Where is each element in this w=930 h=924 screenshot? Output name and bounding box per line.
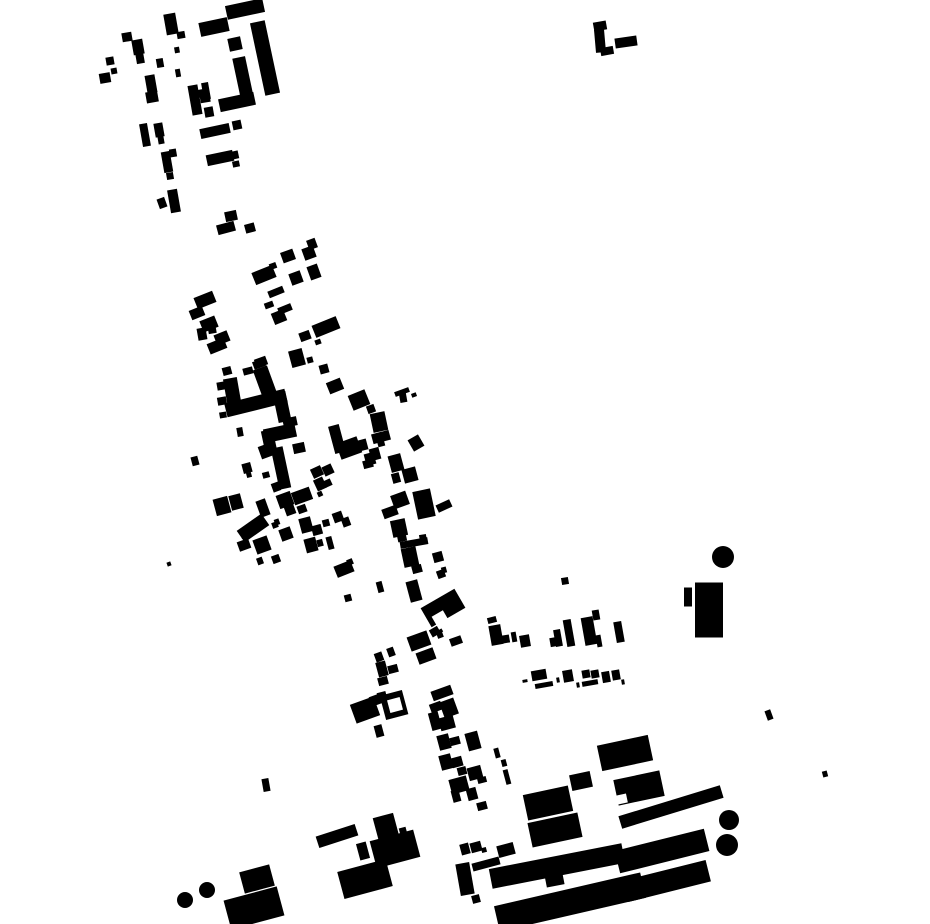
circular-building-footprint [712, 546, 734, 568]
building-footprint [569, 771, 593, 791]
building-footprint [408, 434, 425, 451]
building-footprint [377, 676, 389, 686]
building-footprint [415, 647, 436, 664]
circular-building-footprint [199, 882, 215, 898]
building-footprint [241, 462, 252, 474]
building-footprint [213, 496, 232, 516]
building-footprint [204, 106, 215, 117]
building-footprint [316, 824, 359, 848]
building-footprint [306, 264, 321, 281]
building-footprint [366, 404, 376, 414]
building-footprint [370, 411, 389, 433]
building-footprint [321, 463, 334, 476]
building-footprint [291, 487, 313, 506]
building-footprint [312, 316, 341, 338]
building-footprint [264, 301, 275, 310]
building-footprint [228, 493, 243, 511]
building-footprint [232, 160, 240, 167]
building-footprint [519, 634, 531, 648]
map-canvas [0, 0, 930, 924]
building-footprint [449, 635, 463, 647]
building-footprint [176, 31, 185, 39]
building-footprint [261, 778, 270, 792]
building-footprint [227, 36, 242, 51]
building-footprint [581, 616, 598, 646]
building-footprint [582, 679, 599, 687]
building-footprint [469, 841, 482, 854]
building-footprint [318, 363, 329, 374]
building-footprint [198, 17, 229, 37]
building-footprint [561, 577, 569, 585]
building-footprint [145, 91, 159, 104]
building-footprint [595, 635, 602, 648]
building-footprint [298, 516, 313, 534]
building-footprint [99, 72, 112, 84]
building-footprint [471, 894, 481, 904]
building-footprint [193, 291, 216, 310]
building-footprint [288, 270, 303, 285]
building-footprint [216, 221, 236, 235]
building-footprint [190, 456, 199, 467]
building-footprint [590, 669, 599, 678]
building-footprint [280, 249, 296, 264]
building-footprint [306, 356, 313, 363]
building-footprint [311, 524, 323, 536]
building-footprint [255, 498, 270, 517]
building-footprint [432, 551, 444, 563]
building-footprint [535, 681, 554, 689]
building-footprint [764, 709, 773, 720]
building-footprint [412, 488, 435, 519]
building-footprint [449, 736, 461, 746]
building-footprint [169, 148, 177, 157]
building-footprint [487, 616, 497, 624]
building-footprint [457, 766, 468, 776]
building-footprint [207, 324, 216, 334]
building-footprint [522, 679, 527, 683]
building-footprint [189, 306, 206, 321]
building-footprint [216, 381, 225, 390]
building-footprint [222, 366, 233, 376]
building-footprint [296, 504, 307, 515]
building-footprint [303, 537, 318, 554]
building-footprint [381, 505, 399, 520]
building-footprint [163, 13, 178, 36]
building-footprint [375, 660, 389, 677]
building-footprint [262, 471, 270, 479]
building-footprint [556, 677, 560, 682]
building-footprint [244, 222, 256, 233]
building-footprint [207, 338, 228, 355]
building-footprint [156, 58, 164, 68]
building-footprint [476, 801, 488, 811]
building-footprint [563, 619, 576, 647]
building-footprint [411, 392, 417, 397]
building-footprint [621, 679, 625, 684]
building-footprint [684, 588, 692, 607]
circular-building-footprint [719, 810, 739, 830]
building-footprint [459, 843, 471, 856]
building-footprint [314, 339, 321, 346]
building-footprint [614, 36, 637, 49]
building-footprint [496, 842, 516, 858]
circular-building-footprint [716, 834, 738, 856]
building-footprint [111, 68, 118, 75]
building-footprint [242, 366, 253, 375]
building-footprint [455, 862, 474, 896]
building-footprint [157, 197, 168, 209]
building-footprint [326, 378, 344, 395]
building-footprint [562, 669, 574, 683]
building-footprint [105, 56, 114, 65]
building-footprint [199, 123, 230, 139]
building-footprint [199, 93, 210, 104]
building-footprint [288, 348, 306, 368]
building-footprint [250, 20, 280, 96]
building-footprint [175, 69, 181, 78]
building-footprint [121, 32, 132, 43]
building-footprint [278, 526, 293, 541]
building-footprint-map [0, 0, 930, 924]
building-footprint [466, 787, 479, 801]
building-footprint [531, 669, 548, 681]
building-footprint [362, 459, 374, 469]
building-footprint [419, 534, 427, 542]
building-footprint [252, 535, 271, 554]
building-footprint [501, 759, 508, 767]
building-footprint [256, 557, 264, 566]
building-footprint [503, 769, 512, 785]
building-footprint [592, 609, 601, 620]
building-footprint [271, 554, 281, 564]
building-footprint [224, 886, 285, 924]
building-footprint [376, 581, 385, 593]
building-footprint [187, 84, 202, 115]
building-footprint [493, 748, 500, 759]
building-footprint [386, 647, 396, 658]
building-footprint [822, 770, 828, 777]
building-footprint [391, 472, 401, 484]
circular-building-footprint [177, 892, 193, 908]
building-footprint [267, 286, 284, 298]
building-footprint [174, 47, 180, 54]
building-footprint [576, 682, 580, 687]
building-footprint [436, 499, 453, 513]
building-footprint [224, 210, 238, 222]
building-footprint [407, 630, 432, 651]
building-footprint [166, 561, 171, 566]
building-footprint [322, 519, 331, 528]
building-footprint [135, 52, 145, 64]
building-footprint [236, 427, 243, 437]
building-footprint [374, 651, 385, 662]
building-footprint [401, 546, 420, 568]
building-footprint [167, 189, 181, 213]
building-footprint [436, 733, 451, 751]
building-footprint [225, 0, 265, 20]
building-footprint [601, 671, 611, 683]
building-footprint [464, 731, 481, 752]
building-footprint [344, 594, 353, 603]
building-footprint [317, 491, 324, 498]
building-footprint [153, 122, 164, 137]
building-footprint [511, 632, 518, 643]
building-footprint [405, 579, 422, 602]
building-footprint [218, 92, 256, 112]
building-footprint [613, 621, 625, 643]
building-footprint [325, 536, 334, 550]
building-footprint [356, 841, 370, 860]
building-footprint [337, 859, 393, 899]
building-footprint [157, 136, 164, 145]
building-footprint [387, 664, 399, 674]
building-footprint [232, 120, 243, 131]
building-footprint [439, 697, 459, 718]
building-footprint [374, 724, 385, 738]
building-footprint [581, 669, 590, 678]
building-footprint [597, 735, 653, 771]
building-footprint [543, 866, 564, 887]
building-footprint [206, 150, 235, 166]
building-footprint [166, 172, 174, 180]
building-footprint [488, 624, 503, 646]
building-footprint [695, 583, 723, 638]
building-footprint [237, 538, 252, 552]
building-footprint [292, 442, 306, 454]
building-footprint [502, 634, 510, 643]
building-footprint [611, 669, 621, 680]
building-footprint [219, 411, 227, 418]
building-footprint [298, 330, 311, 342]
building-footprint [139, 123, 151, 147]
